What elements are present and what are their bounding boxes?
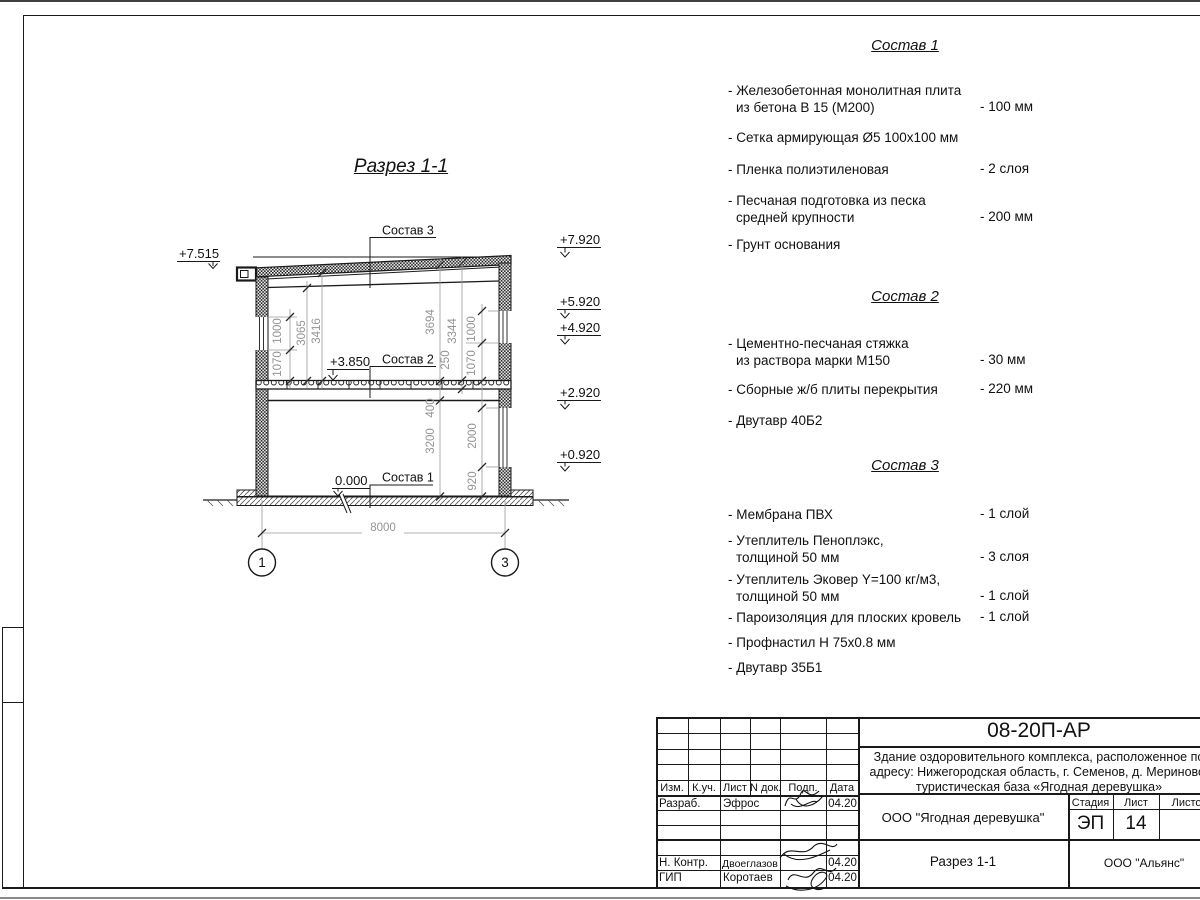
titleblock-line <box>656 780 858 781</box>
dim-2000: 2000 <box>467 423 479 449</box>
col-ndok: N док. <box>750 782 780 794</box>
dim-left-1070: 1070 <box>272 351 284 377</box>
dim-3416: 3416 <box>311 318 323 344</box>
sheet-label: Лист <box>1113 797 1159 809</box>
drawing-sheet: Разрез 1-1 <box>0 0 1200 900</box>
material-item: - Грунт основания <box>728 236 840 253</box>
elevation-7515: +7.515 <box>179 246 219 261</box>
dim-400: 400 <box>425 398 437 417</box>
signature-razrab <box>781 784 829 814</box>
dim-3694: 3694 <box>425 309 437 335</box>
stage-value: ЭП <box>1068 813 1113 835</box>
elevation-7920: +7.920 <box>560 232 600 247</box>
dim-920: 920 <box>467 471 479 490</box>
razrab-label: Разраб. <box>659 798 700 810</box>
frame-bottom <box>2 887 1200 889</box>
dim-3200: 3200 <box>425 428 437 454</box>
titleblock-line <box>656 749 858 750</box>
dim-3344: 3344 <box>447 318 459 344</box>
axis-1: 1 <box>258 555 266 570</box>
composition-leaders <box>370 238 436 509</box>
titleblock-line <box>656 839 1200 841</box>
razrab-name: Эфрос <box>723 798 759 810</box>
label-sostav3: Состав 3 <box>382 224 434 238</box>
dim-right-1000: 1000 <box>466 316 478 342</box>
material-value: - 100 мм <box>980 99 1033 114</box>
col-izm: Изм. <box>656 782 688 794</box>
material-value: - 1 слой <box>980 506 1029 521</box>
customer-org: ООО "Ягодная деревушка" <box>858 810 1068 825</box>
titleblock-line <box>656 733 858 734</box>
sheet-number: 14 <box>1113 813 1159 835</box>
sostav2-heading: Состав 2 <box>728 288 1082 305</box>
section-drawing: 1000 1070 3065 3416 3694 3344 250 1000 1… <box>150 140 670 610</box>
view-name: Разрез 1-1 <box>858 854 1068 869</box>
stage-label: Стадия <box>1068 797 1113 809</box>
ground-slab <box>237 497 533 506</box>
dim-250: 250 <box>440 350 452 369</box>
col-kuch: К.уч. <box>688 782 720 794</box>
material-item: - Железобетонная монолитная плитаиз бето… <box>728 82 961 116</box>
material-item: - Профнастил Н 75х0.8 мм <box>728 634 895 651</box>
titleblock-code: 08-20П-АР <box>858 719 1200 743</box>
sostav1-heading: Состав 1 <box>728 37 1082 54</box>
titleblock-line <box>858 746 1200 748</box>
titleblock-line <box>656 717 658 889</box>
frame-top <box>23 15 1200 16</box>
label-sostav1: Состав 1 <box>382 471 434 485</box>
material-item: - Двутавр 40Б2 <box>728 412 822 429</box>
col-data: Дата <box>826 782 858 794</box>
sheet-top-edge <box>0 0 1200 2</box>
axis-bubbles: 1 3 <box>249 549 519 576</box>
titleblock-line <box>656 825 858 826</box>
nkontr-name: Двоеглазов <box>722 858 778 870</box>
material-value: - 1 слой <box>980 609 1029 624</box>
elevation-5920: +5.920 <box>560 294 600 309</box>
material-item: - Пленка полиэтиленовая <box>728 161 889 178</box>
titleblock-line <box>720 717 721 888</box>
nkontr-label: Н. Контр. <box>659 857 708 869</box>
material-item: - Сетка армирующая Ø5 100х100 мм <box>728 129 958 146</box>
project-description-line3: туристическая база «Ягодная деревушка» <box>858 780 1200 794</box>
material-value: - 200 мм <box>980 209 1033 224</box>
razrab-date: 04.20 <box>827 798 858 810</box>
material-item: - Утеплитель Пеноплэкс,толщиной 50 мм <box>728 532 884 566</box>
dimension-ticks <box>258 259 509 537</box>
dim-left-1000: 1000 <box>272 318 284 344</box>
axis-3: 3 <box>501 555 509 570</box>
left-column-divider-top <box>2 627 23 628</box>
material-item: - Песчаная подготовка из пескасредней кр… <box>728 192 926 226</box>
frame-left <box>23 15 24 887</box>
elevation-marks <box>177 248 601 497</box>
titleblock-line <box>656 764 858 765</box>
titleblock-line <box>1068 809 1200 810</box>
elevation-2920: +2.920 <box>560 385 600 400</box>
elevation-3850: +3.850 <box>330 354 370 369</box>
elevation-4920: +4.920 <box>560 320 600 335</box>
material-value: - 2 слоя <box>980 161 1029 176</box>
material-item: - Сборные ж/б плиты перекрытия <box>728 381 938 398</box>
gip-label: ГИП <box>659 872 682 884</box>
material-value: - 30 мм <box>980 352 1026 367</box>
col-list: Лист <box>720 782 750 794</box>
roof-band <box>242 256 511 278</box>
material-item: - Пароизоляция для плоских кровель <box>728 609 961 626</box>
project-description-line2: адресу: Нижегородская область, г. Семено… <box>858 765 1200 779</box>
contractor-company: ООО "Альянс" <box>1068 856 1200 870</box>
ceiling-line <box>268 281 499 288</box>
gip-name: Коротаев <box>723 872 773 884</box>
dim-right-1070: 1070 <box>466 350 478 376</box>
material-item: - Утеплитель Эковер Y=100 кг/м3,толщиной… <box>728 571 940 605</box>
dim-3065: 3065 <box>296 320 308 346</box>
elevation-0920: +0.920 <box>560 447 600 462</box>
sheet-bottom-edge <box>0 897 1200 899</box>
dim-8000: 8000 <box>370 522 396 534</box>
left-column-divider-mid <box>2 702 23 703</box>
material-value: - 220 мм <box>980 381 1033 396</box>
elevation-0000: 0.000 <box>335 473 368 488</box>
signature-nkontr-gip <box>774 840 842 894</box>
material-item: - Цементно-песчаная стяжкаиз раствора ма… <box>728 335 909 369</box>
material-item: - Мембрана ПВХ <box>728 506 833 523</box>
material-item: - Двутавр 35Б1 <box>728 659 822 676</box>
material-value: - 3 слоя <box>980 549 1029 564</box>
sostav3-heading: Состав 3 <box>728 457 1082 474</box>
sheets-label: Листов <box>1159 797 1200 809</box>
label-sostav2: Состав 2 <box>382 353 434 367</box>
project-description-line1: Здание оздоровительного комплекса, распо… <box>858 750 1200 764</box>
material-value: - 1 слой <box>980 588 1029 603</box>
left-column-outer <box>2 627 3 887</box>
